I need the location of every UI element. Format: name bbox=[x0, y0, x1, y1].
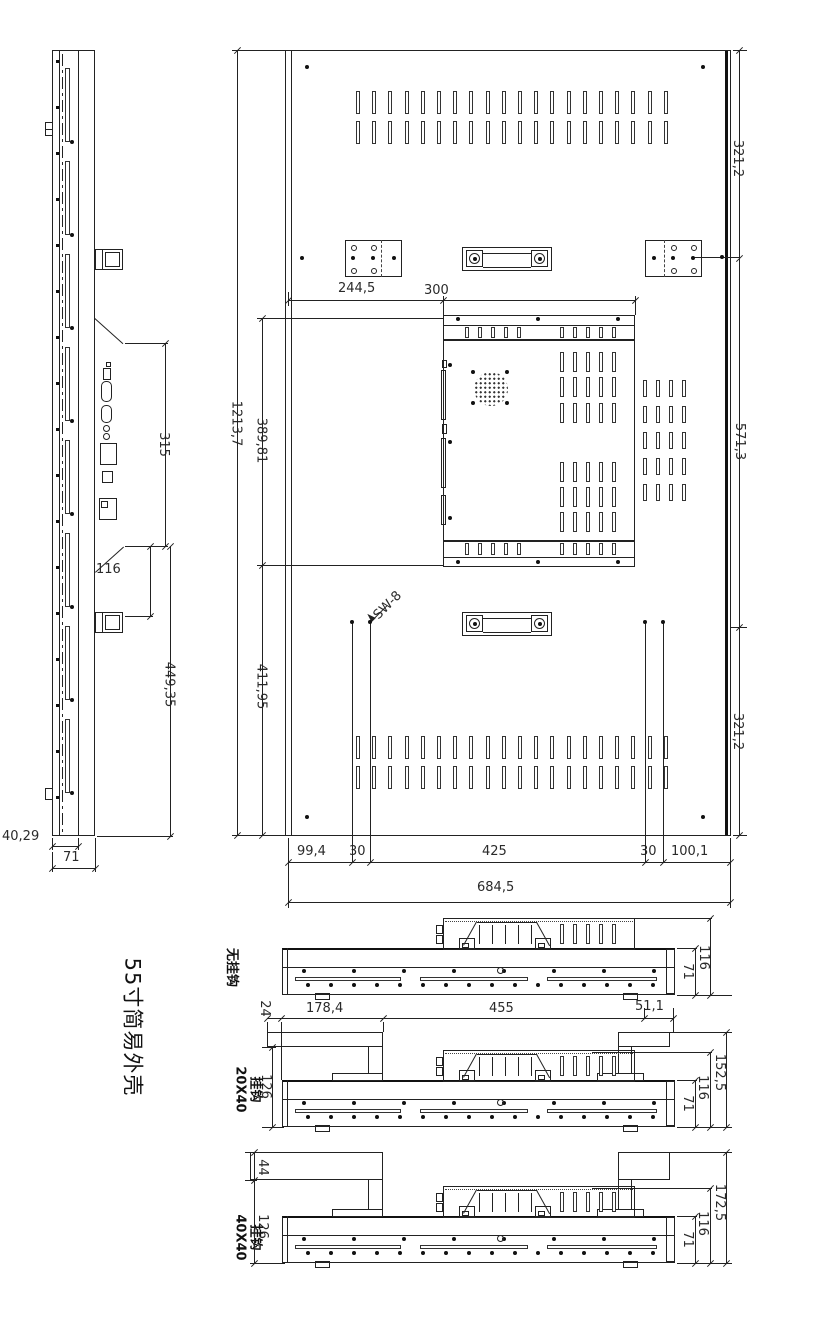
plate-hole bbox=[671, 245, 677, 251]
screw-dot bbox=[552, 1237, 556, 1241]
screw-dot bbox=[652, 969, 656, 973]
plate-hole bbox=[371, 245, 377, 251]
vent-slot bbox=[560, 924, 564, 944]
screw-dot bbox=[402, 1101, 406, 1105]
vent-slot bbox=[682, 406, 686, 423]
bottom-tab bbox=[623, 993, 638, 1000]
screw-dot bbox=[616, 317, 620, 321]
vent-slot bbox=[583, 91, 587, 114]
screw-dot bbox=[602, 969, 606, 973]
screw-dot bbox=[421, 983, 425, 987]
dim-684-5: 684,5 bbox=[477, 880, 514, 895]
vent-slot bbox=[65, 626, 70, 700]
line bbox=[383, 1022, 384, 1032]
vent-slot bbox=[599, 736, 603, 759]
vent-slot bbox=[560, 487, 564, 507]
vent-slot bbox=[612, 352, 616, 372]
screw-dot bbox=[452, 1237, 456, 1241]
bracket-rib bbox=[479, 1193, 480, 1212]
dvi-port bbox=[101, 405, 112, 423]
vent-slot bbox=[388, 736, 392, 759]
screw-dot bbox=[701, 815, 705, 819]
vent-slot bbox=[586, 462, 590, 482]
line bbox=[262, 318, 263, 835]
line bbox=[52, 846, 78, 847]
vent-slot bbox=[612, 1192, 616, 1212]
screw-dot bbox=[444, 983, 448, 987]
screw-dot bbox=[691, 256, 695, 260]
hook-20x40-right-plate bbox=[618, 1032, 670, 1047]
vent-slot bbox=[656, 432, 660, 449]
line bbox=[370, 622, 371, 862]
screw-dot bbox=[56, 198, 59, 201]
vent-slot bbox=[421, 766, 425, 789]
vent-slot bbox=[469, 121, 473, 144]
screw-dot bbox=[398, 1251, 402, 1255]
vent-slot bbox=[648, 736, 652, 759]
vent-slot bbox=[502, 736, 506, 759]
screw-dot bbox=[456, 317, 460, 321]
screw-dot bbox=[402, 969, 406, 973]
screw-dot bbox=[302, 969, 306, 973]
vent-slot bbox=[612, 543, 616, 555]
line bbox=[170, 546, 171, 836]
screw-dot bbox=[602, 1237, 606, 1241]
vent-slot bbox=[631, 736, 635, 759]
screw-dot bbox=[306, 983, 310, 987]
vent-slot bbox=[615, 91, 619, 114]
bracket-rib bbox=[492, 1193, 493, 1212]
screw-dot bbox=[490, 1115, 494, 1119]
screw-dot bbox=[552, 969, 556, 973]
line bbox=[267, 1018, 673, 1019]
vent-slot bbox=[502, 91, 506, 114]
vent-slot bbox=[682, 484, 686, 501]
dim-v2-71: 71 bbox=[681, 1090, 694, 1116]
vent-slot bbox=[356, 736, 360, 759]
vent-slot bbox=[486, 121, 490, 144]
line bbox=[726, 1032, 727, 1127]
line bbox=[267, 1022, 268, 1032]
connector-cutout bbox=[442, 360, 447, 368]
screw-dot bbox=[505, 401, 509, 405]
hook-20x40-left-foot bbox=[332, 1073, 383, 1081]
line bbox=[443, 339, 635, 341]
screw-dot bbox=[56, 796, 59, 799]
hook-40x40-right-plate bbox=[618, 1152, 670, 1180]
vent-slot bbox=[65, 254, 70, 328]
screw-dot bbox=[300, 256, 304, 260]
vent-slot bbox=[573, 462, 577, 482]
vent-slot bbox=[560, 543, 564, 555]
vent-slot bbox=[599, 512, 603, 532]
rear-panel-right-edge bbox=[725, 51, 728, 835]
vent-slot bbox=[567, 766, 571, 789]
vent-slot bbox=[573, 327, 577, 338]
vent-slot bbox=[615, 736, 619, 759]
dim-100-1: 100,1 bbox=[671, 844, 708, 859]
cad-sheet: SW-8 116 40,29 71 244,5 300 99,4 30 425 … bbox=[0, 0, 820, 1338]
screw-dot bbox=[552, 1101, 556, 1105]
screw-dot bbox=[467, 983, 471, 987]
vent-slot bbox=[502, 121, 506, 144]
vent-slot bbox=[586, 924, 590, 944]
screw-dot bbox=[398, 1115, 402, 1119]
screw-dot bbox=[56, 428, 59, 431]
dim-411-95: 411,95 bbox=[253, 656, 269, 716]
vent-slot bbox=[421, 91, 425, 114]
vent-slot bbox=[599, 327, 603, 338]
center-mark bbox=[497, 1235, 504, 1242]
vent-slot bbox=[669, 406, 673, 423]
screw-dot bbox=[56, 566, 59, 569]
key-slot bbox=[420, 1245, 528, 1249]
vent-slot bbox=[388, 766, 392, 789]
vent-slot bbox=[586, 487, 590, 507]
screw-dot bbox=[605, 983, 609, 987]
bracket-foot-inner bbox=[538, 943, 545, 948]
vent-slot bbox=[612, 487, 616, 507]
screw-dot bbox=[628, 1115, 632, 1119]
bracket-rib bbox=[518, 1193, 519, 1212]
line bbox=[262, 1047, 276, 1048]
vent-slot bbox=[560, 377, 564, 397]
vent-slot bbox=[599, 766, 603, 789]
bar-inner-edge bbox=[287, 948, 288, 995]
vent-slot bbox=[504, 543, 508, 555]
fuse-holder bbox=[102, 471, 113, 483]
key-slot bbox=[547, 977, 657, 981]
vent-slot bbox=[567, 121, 571, 144]
vent-slot bbox=[469, 766, 473, 789]
vent-slot bbox=[615, 766, 619, 789]
line bbox=[483, 253, 531, 254]
plate-hole bbox=[371, 268, 377, 274]
line bbox=[483, 267, 531, 268]
bracket-rib bbox=[518, 1057, 519, 1076]
screw-dot bbox=[70, 140, 74, 144]
screw-dot bbox=[329, 1115, 333, 1119]
vent-slot bbox=[504, 327, 508, 338]
connector-cutout bbox=[441, 438, 446, 488]
line bbox=[352, 622, 353, 862]
bracket-rib bbox=[531, 925, 532, 944]
screw-dot bbox=[70, 326, 74, 330]
screw-dot bbox=[490, 1251, 494, 1255]
screw-dot bbox=[538, 622, 542, 626]
screw-dot bbox=[56, 290, 59, 293]
screw-dot bbox=[456, 560, 460, 564]
audio-jack-2 bbox=[103, 433, 110, 440]
vent-slot bbox=[599, 121, 603, 144]
bracket-foot-inner bbox=[462, 1211, 469, 1216]
speaker-grille bbox=[474, 372, 508, 406]
vent-slot bbox=[573, 512, 577, 532]
line bbox=[45, 129, 53, 130]
key-slot bbox=[295, 1245, 401, 1249]
screw-dot bbox=[421, 1115, 425, 1119]
vent-slot bbox=[453, 766, 457, 789]
vent-slot bbox=[356, 121, 360, 144]
screw-dot bbox=[652, 1101, 656, 1105]
dim-571-3: 571,3 bbox=[732, 413, 748, 469]
line bbox=[695, 1216, 696, 1263]
screw-dot bbox=[536, 560, 540, 564]
box-flange bbox=[436, 1193, 443, 1202]
vent-slot bbox=[599, 1056, 603, 1076]
vent-slot bbox=[612, 327, 616, 338]
vent-slot bbox=[586, 543, 590, 555]
screw-dot bbox=[582, 1251, 586, 1255]
vent-slot bbox=[372, 91, 376, 114]
screw-dot bbox=[652, 1237, 656, 1241]
bracket-foot-inner bbox=[538, 1075, 545, 1080]
hidden-edge bbox=[445, 921, 633, 922]
box-flange bbox=[436, 925, 443, 934]
vent-slot bbox=[573, 377, 577, 397]
section-bar-40x40 bbox=[282, 1216, 675, 1263]
hook-20x40-left-web bbox=[368, 1046, 383, 1074]
line bbox=[52, 868, 95, 869]
vent-slot bbox=[518, 736, 522, 759]
screw-dot bbox=[661, 620, 665, 624]
screw-dot bbox=[652, 256, 656, 260]
vent-slot bbox=[599, 1192, 603, 1212]
vent-slot bbox=[405, 91, 409, 114]
bracket-top bbox=[477, 922, 537, 923]
power-inlet-pin bbox=[101, 501, 108, 508]
screw-dot bbox=[448, 516, 452, 520]
screw-dot bbox=[536, 317, 540, 321]
vent-slot bbox=[631, 766, 635, 789]
vent-slot bbox=[631, 121, 635, 144]
screw-dot bbox=[513, 1251, 517, 1255]
vent-slot bbox=[631, 91, 635, 114]
screw-dot bbox=[352, 1115, 356, 1119]
line bbox=[254, 1152, 255, 1263]
dim-v3-116: 116 bbox=[696, 1206, 709, 1240]
ir-window bbox=[106, 362, 111, 367]
vent-slot bbox=[599, 924, 603, 944]
audio-jack-1 bbox=[103, 425, 110, 432]
line bbox=[443, 540, 635, 542]
vent-slot bbox=[478, 543, 482, 555]
screw-dot bbox=[452, 969, 456, 973]
screw-dot bbox=[513, 983, 517, 987]
screw-dot bbox=[371, 256, 375, 260]
screw-dot bbox=[505, 370, 509, 374]
line bbox=[739, 50, 740, 835]
dim-v2-116: 116 bbox=[696, 1070, 709, 1104]
screw-dot bbox=[473, 622, 477, 626]
vent-slot bbox=[669, 484, 673, 501]
line bbox=[443, 325, 635, 326]
dim-300: 300 bbox=[424, 283, 449, 298]
dim-30-right: 30 bbox=[640, 844, 657, 859]
box-flange bbox=[436, 1057, 443, 1066]
vent-slot bbox=[518, 91, 522, 114]
vent-slot bbox=[65, 347, 70, 421]
line bbox=[726, 1152, 727, 1263]
screw-dot bbox=[305, 815, 309, 819]
screw-dot bbox=[352, 1101, 356, 1105]
dim-51-1: 51,1 bbox=[635, 999, 664, 1014]
key-slot bbox=[295, 977, 401, 981]
screw-dot bbox=[56, 612, 59, 615]
bar-inner-line bbox=[282, 1235, 675, 1236]
bracket-rib bbox=[531, 1193, 532, 1212]
vent-slot bbox=[388, 121, 392, 144]
dim-449-35: 449,35 bbox=[161, 652, 177, 716]
vent-slot bbox=[465, 543, 469, 555]
screw-dot bbox=[56, 520, 59, 523]
vent-slot bbox=[486, 736, 490, 759]
line bbox=[288, 300, 635, 301]
bottom-tab bbox=[623, 1261, 638, 1268]
screw-dot bbox=[375, 1251, 379, 1255]
vent-slot bbox=[612, 1056, 616, 1076]
line bbox=[673, 1008, 674, 1032]
screw-dot bbox=[56, 106, 59, 109]
vent-slot bbox=[573, 352, 577, 372]
bracket-rib bbox=[505, 1057, 506, 1076]
mount-plate-left-fold bbox=[381, 240, 382, 277]
screw-dot bbox=[473, 257, 477, 261]
screw-dot bbox=[70, 605, 74, 609]
vent-slot bbox=[612, 377, 616, 397]
drawing-title: 55寸简易外壳 bbox=[112, 948, 154, 1106]
vent-slot bbox=[550, 91, 554, 114]
dim-99-4: 99,4 bbox=[297, 844, 326, 859]
vent-slot bbox=[453, 121, 457, 144]
screw-dot bbox=[720, 255, 724, 259]
vent-slot bbox=[669, 432, 673, 449]
screw-dot bbox=[70, 233, 74, 237]
dim-v2-152-5: 152,5 bbox=[712, 1048, 727, 1096]
vent-slot bbox=[612, 462, 616, 482]
vent-slot bbox=[560, 327, 564, 338]
screw-dot bbox=[444, 1251, 448, 1255]
line bbox=[645, 622, 646, 862]
screw-dot bbox=[701, 65, 705, 69]
screw-dot bbox=[56, 750, 59, 753]
bar-inner-line bbox=[282, 1099, 675, 1100]
bracket-foot-inner bbox=[538, 1211, 545, 1216]
vent-slot bbox=[517, 327, 521, 338]
bracket-rib bbox=[479, 925, 480, 944]
screw-dot bbox=[352, 1251, 356, 1255]
vent-slot bbox=[437, 736, 441, 759]
screw-dot bbox=[351, 256, 355, 260]
vent-slot bbox=[664, 736, 668, 759]
vent-slot bbox=[643, 380, 647, 397]
vent-slot bbox=[682, 458, 686, 475]
vent-slot bbox=[612, 512, 616, 532]
hook-20x40-left-plate bbox=[267, 1032, 383, 1047]
hook-40x40-left-foot bbox=[332, 1209, 383, 1217]
section-bar-20x40-endcap bbox=[666, 1081, 675, 1126]
screw-dot bbox=[602, 1101, 606, 1105]
vent-slot bbox=[550, 736, 554, 759]
line bbox=[257, 565, 443, 566]
screw-dot bbox=[56, 704, 59, 707]
line bbox=[102, 249, 103, 270]
vent-slot bbox=[586, 512, 590, 532]
vent-slot bbox=[453, 736, 457, 759]
screw-dot bbox=[651, 983, 655, 987]
vent-slot bbox=[65, 161, 70, 235]
mount-clip-bottom bbox=[45, 788, 53, 800]
vent-slot bbox=[643, 406, 647, 423]
screw-dot bbox=[671, 256, 675, 260]
vent-slot bbox=[643, 432, 647, 449]
screw-dot bbox=[70, 512, 74, 516]
vent-slot bbox=[560, 462, 564, 482]
vent-slot bbox=[573, 487, 577, 507]
bottom-tab bbox=[623, 1125, 638, 1132]
screw-dot bbox=[467, 1115, 471, 1119]
vent-slot bbox=[612, 403, 616, 423]
screw-dot bbox=[306, 1251, 310, 1255]
vent-slot bbox=[65, 719, 70, 793]
dim-v1-71: 71 bbox=[681, 958, 694, 984]
vent-slot bbox=[405, 736, 409, 759]
vent-slot bbox=[573, 403, 577, 423]
screw-dot bbox=[350, 620, 354, 624]
dim-321-2-bottom: 321,2 bbox=[730, 703, 746, 759]
key-slot bbox=[295, 1109, 401, 1113]
vent-slot bbox=[491, 327, 495, 338]
plate-hole bbox=[671, 268, 677, 274]
key-slot bbox=[547, 1245, 657, 1249]
screw-dot bbox=[643, 620, 647, 624]
vent-slot bbox=[567, 91, 571, 114]
vent-slot bbox=[534, 766, 538, 789]
vent-slot bbox=[469, 736, 473, 759]
line bbox=[695, 948, 696, 995]
mount-plate-right-fold bbox=[664, 240, 665, 277]
line bbox=[165, 343, 166, 546]
screw-dot bbox=[628, 1251, 632, 1255]
screw-dot bbox=[302, 1237, 306, 1241]
screw-dot bbox=[448, 363, 452, 367]
vent-slot bbox=[586, 1192, 590, 1212]
bottom-tab bbox=[315, 1125, 330, 1132]
bracket-foot-inner bbox=[462, 943, 469, 948]
vent-slot bbox=[65, 440, 70, 514]
screw-dot bbox=[628, 983, 632, 987]
vent-slot bbox=[599, 543, 603, 555]
vent-slot bbox=[669, 380, 673, 397]
screw-dot bbox=[536, 1115, 540, 1119]
vent-slot bbox=[682, 380, 686, 397]
bar-inner-line bbox=[282, 967, 675, 968]
vent-slot bbox=[550, 766, 554, 789]
vent-slot bbox=[664, 121, 668, 144]
connector-cutout bbox=[442, 424, 447, 434]
line bbox=[695, 1080, 696, 1127]
vent-slot bbox=[583, 121, 587, 144]
vent-slot bbox=[599, 91, 603, 114]
screw-dot bbox=[402, 1237, 406, 1241]
vent-slot bbox=[372, 766, 376, 789]
vent-slot bbox=[534, 91, 538, 114]
screw-dot bbox=[421, 1251, 425, 1255]
screw-dot bbox=[70, 791, 74, 795]
plate-hole bbox=[691, 268, 697, 274]
vent-slot bbox=[656, 484, 660, 501]
screw-dot bbox=[490, 983, 494, 987]
